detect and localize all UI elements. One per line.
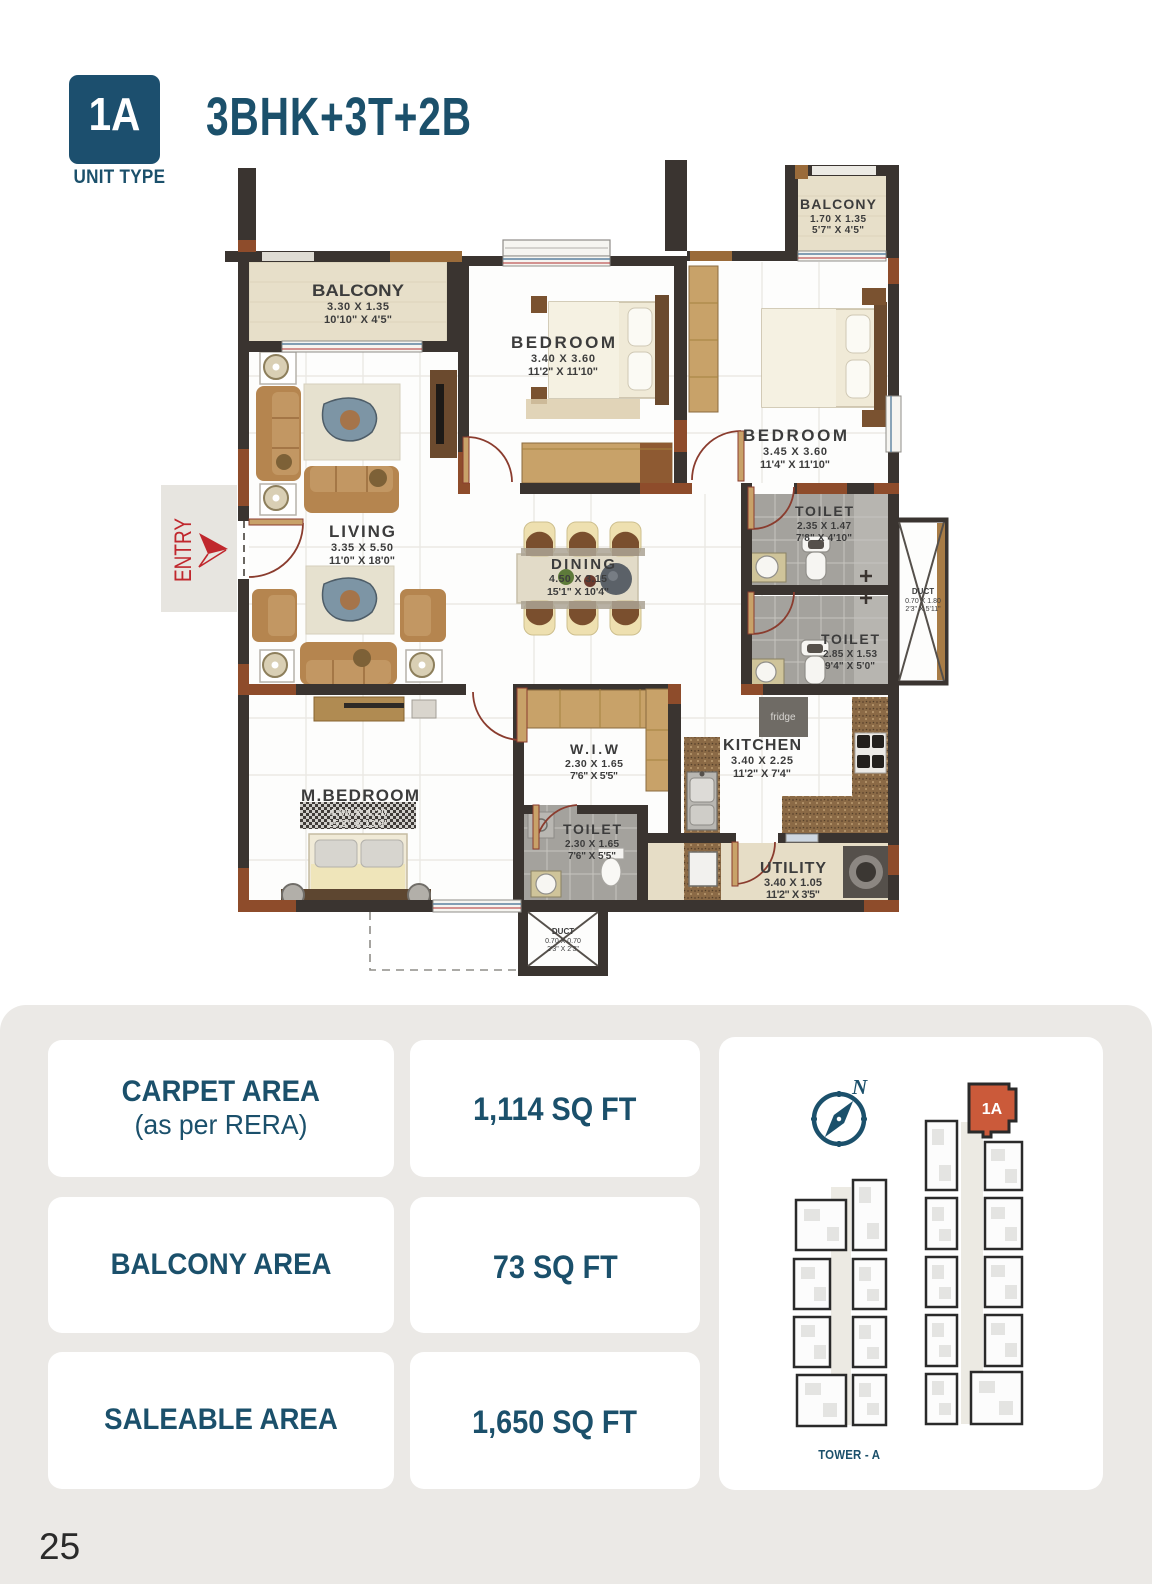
svg-text:1A: 1A	[982, 1101, 1003, 1118]
svg-text:11'2" X 7'4": 11'2" X 7'4"	[733, 768, 791, 780]
svg-text:LIVING: LIVING	[329, 522, 395, 541]
svg-text:7'6" X 5'5": 7'6" X 5'5"	[568, 851, 616, 862]
svg-text:11'0" X 18'0": 11'0" X 18'0"	[329, 555, 395, 567]
svg-text:9'4" X 5'0": 9'4" X 5'0"	[825, 661, 875, 672]
svg-text:0.70 X 1.80: 0.70 X 1.80	[905, 598, 941, 605]
svg-text:BALCONY: BALCONY	[312, 281, 405, 300]
svg-text:fridge: fridge	[770, 712, 795, 723]
svg-text:4.50 X 3.15: 4.50 X 3.15	[549, 573, 607, 585]
svg-text:11'2" X 3'5": 11'2" X 3'5"	[766, 889, 820, 901]
svg-text:2.30 X 1.65: 2.30 X 1.65	[565, 839, 619, 850]
svg-text:N: N	[851, 1075, 868, 1099]
svg-text:3.40 X 2.25: 3.40 X 2.25	[731, 755, 793, 767]
svg-text:3.30 X 1.35: 3.30 X 1.35	[327, 301, 389, 313]
svg-text:W.I.W: W.I.W	[570, 741, 619, 757]
svg-text:15'3" X 13'9": 15'3" X 13'9"	[327, 818, 389, 830]
svg-text:3.35 X 5.50: 3.35 X 5.50	[331, 542, 393, 554]
svg-text:DUCT: DUCT	[552, 927, 574, 936]
svg-text:3.45 X 3.60: 3.45 X 3.60	[763, 446, 827, 458]
svg-text:2.85 X 1.53: 2.85 X 1.53	[823, 649, 877, 660]
svg-text:10'10" X 4'5": 10'10" X 4'5"	[324, 314, 392, 326]
svg-text:M.BEDROOM: M.BEDROOM	[301, 786, 419, 805]
svg-text:ENTRY: ENTRY	[170, 518, 197, 582]
svg-text:DUCT: DUCT	[912, 587, 934, 596]
svg-text:DINING: DINING	[551, 556, 615, 573]
svg-text:3.40 X 1.05: 3.40 X 1.05	[764, 877, 822, 889]
svg-text:2'3" X 2'3": 2'3" X 2'3"	[547, 946, 579, 953]
svg-text:15'1" X 10'4": 15'1" X 10'4"	[547, 586, 609, 598]
svg-text:11'4" X 11'10": 11'4" X 11'10"	[760, 459, 830, 471]
svg-text:UTILITY: UTILITY	[760, 860, 826, 877]
svg-text:2.30 X 1.65: 2.30 X 1.65	[565, 758, 623, 770]
svg-text:5'7" X 4'5": 5'7" X 4'5"	[812, 225, 864, 236]
svg-text:2'3" X 5'11": 2'3" X 5'11"	[905, 606, 941, 613]
svg-text:7'6" X 5'5": 7'6" X 5'5"	[570, 770, 618, 782]
svg-text:11'2" X 11'10": 11'2" X 11'10"	[528, 366, 598, 378]
svg-text:3.40 X 3.60: 3.40 X 3.60	[531, 353, 595, 365]
svg-text:2.35 X 1.47: 2.35 X 1.47	[797, 521, 851, 532]
svg-text:1.70 X 1.35: 1.70 X 1.35	[810, 214, 866, 225]
svg-text:BALCONY: BALCONY	[800, 196, 877, 212]
svg-text:0.70 X 0.70: 0.70 X 0.70	[545, 938, 581, 945]
svg-text:7'8" X 4'10": 7'8" X 4'10"	[796, 533, 852, 544]
